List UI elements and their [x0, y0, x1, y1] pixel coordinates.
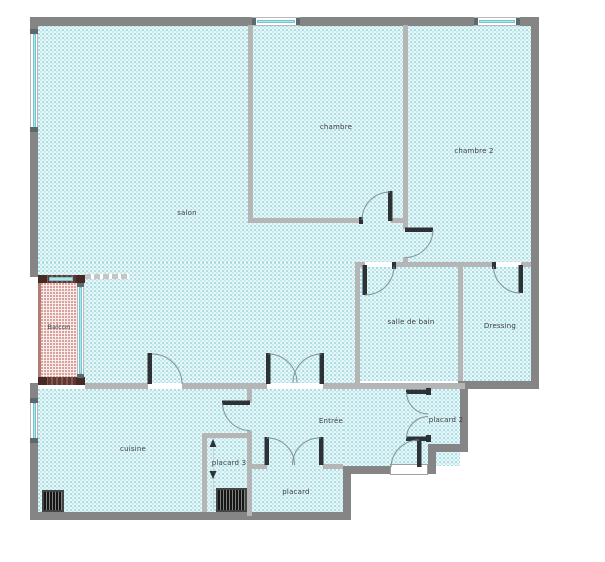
balcony-glass-door-cap-bottom	[77, 374, 84, 378]
window-left-salon-cap-bottom	[30, 127, 38, 132]
room-label-placard: placard	[282, 488, 309, 496]
window-left-salon-cap-top	[30, 29, 38, 34]
room-label-dressing: Dressing	[484, 322, 516, 330]
window-top-chambre-cap-left	[252, 18, 256, 25]
wall-exterior-dressing-bottom	[458, 381, 539, 389]
wall-chambre-chambre2	[403, 25, 408, 229]
wall-placard3-top	[202, 433, 252, 438]
balcony-top-window-glass	[49, 277, 73, 281]
room-label-balcon: Balcon	[47, 323, 70, 331]
room-label-cuisine: cuisine	[120, 445, 146, 453]
room-label-chambre2: chambre 2	[454, 147, 493, 155]
room-label-chambre: chambre	[320, 123, 352, 131]
balcony-glass-door-cap-top	[77, 283, 84, 287]
wall-corridor-south-c	[521, 262, 531, 267]
wall-placard-top-b	[323, 464, 343, 469]
balcony-railing	[38, 283, 41, 377]
entry-door-threshold	[390, 464, 428, 475]
placard3-sliding-door	[213, 438, 214, 510]
floor-area-top	[38, 25, 531, 262]
balcony-wall-top-cap-right	[76, 275, 85, 283]
wall-chambre-bottom-a	[248, 218, 363, 223]
wall-exterior-step-horiz	[428, 444, 468, 452]
room-label-entree: Entrée	[319, 417, 343, 425]
wall-cuisine-entree-lower	[247, 431, 252, 516]
window-left-cuisine-cap-top	[30, 398, 38, 403]
floor-area-entry-right	[343, 389, 460, 466]
wall-bath-left	[355, 262, 360, 388]
room-label-salle-de-bain: salle de bain	[387, 318, 434, 326]
floorplan-canvas: salon chambre chambre 2 salle de bain Dr…	[0, 0, 605, 562]
window-top-chambre2-cap-right	[516, 18, 520, 25]
wall-corridor-south-b	[395, 262, 495, 267]
wall-cuisine-entree-upper	[247, 389, 252, 403]
shaft-placard3	[216, 488, 247, 512]
window-left-salon-glass	[33, 34, 36, 128]
wall-exterior-right	[531, 17, 539, 389]
room-label-placard2: placard 2	[429, 416, 464, 424]
beam-line	[85, 274, 129, 279]
balcony-wall-bottom-cap-right	[76, 377, 85, 385]
wall-salon-south-b	[182, 383, 267, 389]
wall-salon-chambre	[248, 25, 253, 220]
balcony-wall-bottom-cap-left	[38, 377, 47, 385]
window-left-cuisine-glass	[33, 403, 36, 439]
window-top-chambre-cap-right	[296, 18, 300, 25]
wall-chambre-bottom-b	[391, 218, 403, 223]
window-top-chambre2-glass	[479, 20, 515, 23]
shaft-cuisine	[42, 490, 64, 512]
wall-exterior-step-vert-3	[343, 466, 351, 520]
wall-placard-top-a	[252, 464, 267, 469]
wall-exterior-bottom	[30, 512, 351, 520]
window-left-cuisine-cap-bottom	[30, 438, 38, 443]
wall-bath-dressing	[458, 267, 463, 381]
balcony-glass-door-glass	[79, 287, 82, 374]
wall-salon-south-c	[323, 383, 465, 389]
room-label-placard3: placard 3	[212, 459, 247, 467]
wall-salon-south-a	[85, 383, 148, 389]
room-label-salon: salon	[177, 209, 197, 217]
wall-placard3-left	[202, 433, 207, 512]
balcony-wall-top-cap-left	[38, 275, 47, 283]
floor-area-salon-lower	[38, 262, 360, 383]
window-top-chambre-glass	[257, 20, 295, 23]
window-top-chambre2-cap-left	[474, 18, 478, 25]
